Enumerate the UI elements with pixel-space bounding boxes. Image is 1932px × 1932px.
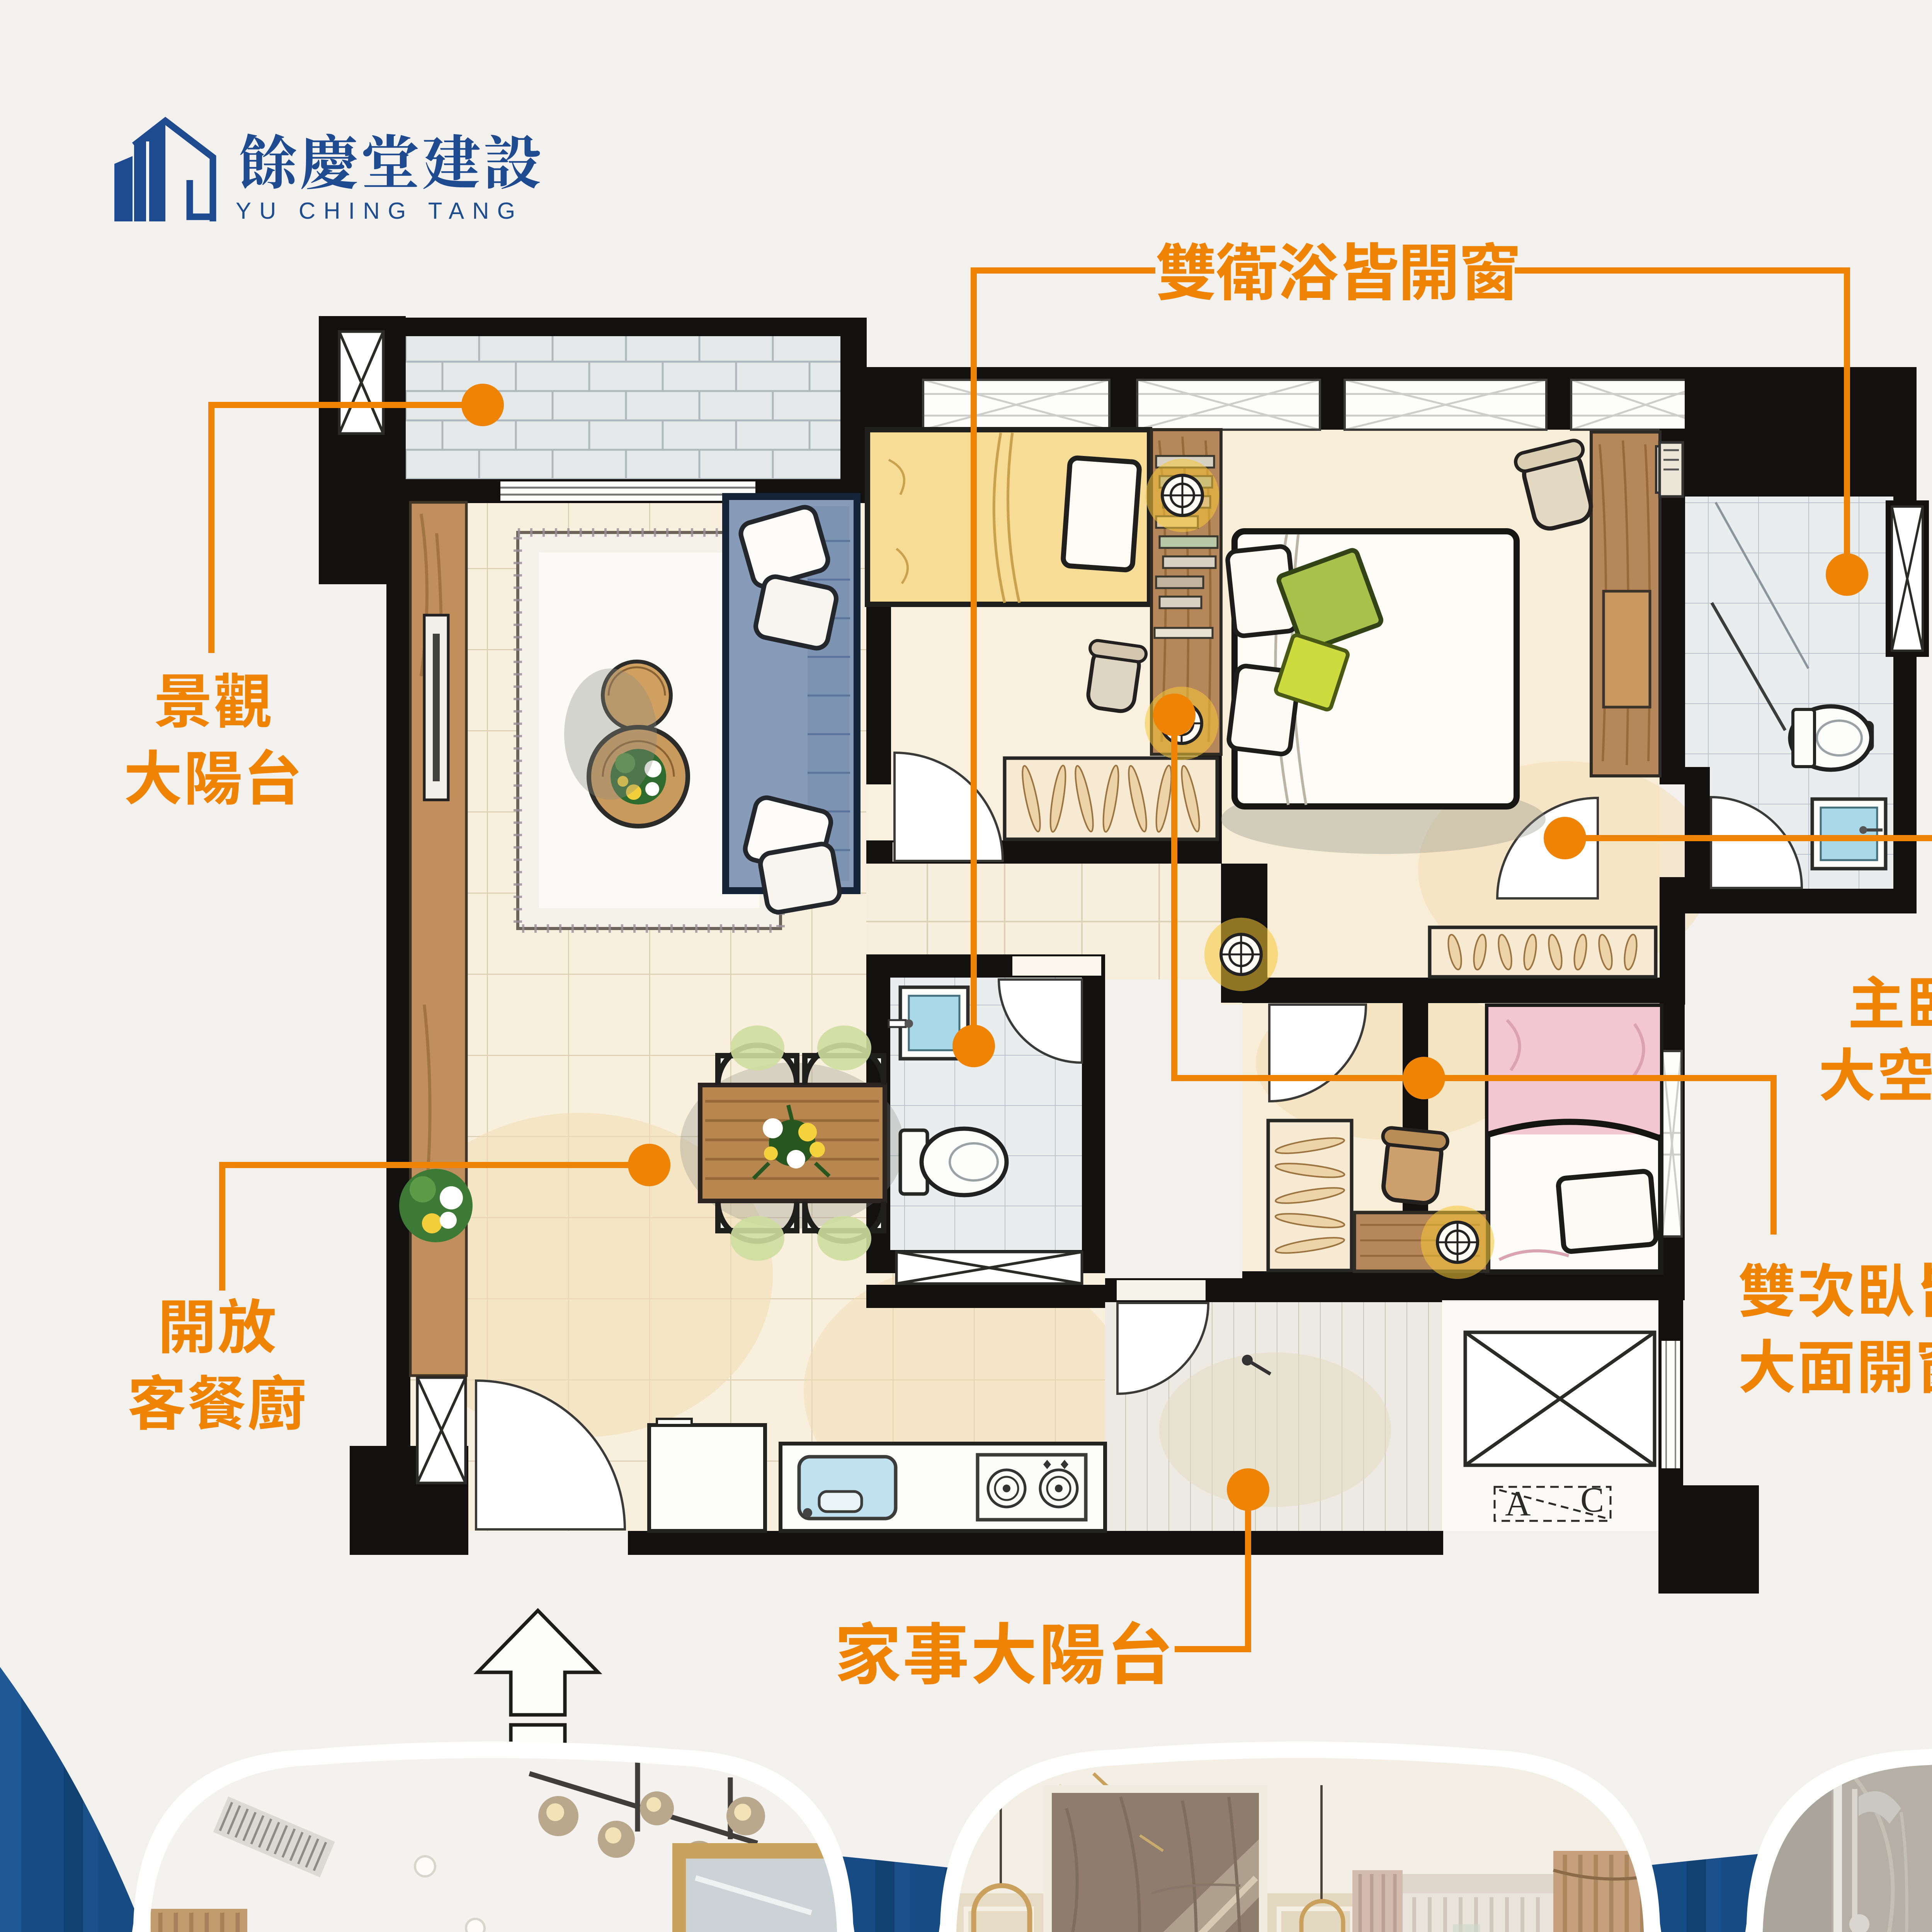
svg-text:C: C <box>1580 1480 1604 1519</box>
svg-text:A: A <box>1505 1484 1531 1523</box>
svg-text:YU CHING TANG: YU CHING TANG <box>236 198 523 224</box>
